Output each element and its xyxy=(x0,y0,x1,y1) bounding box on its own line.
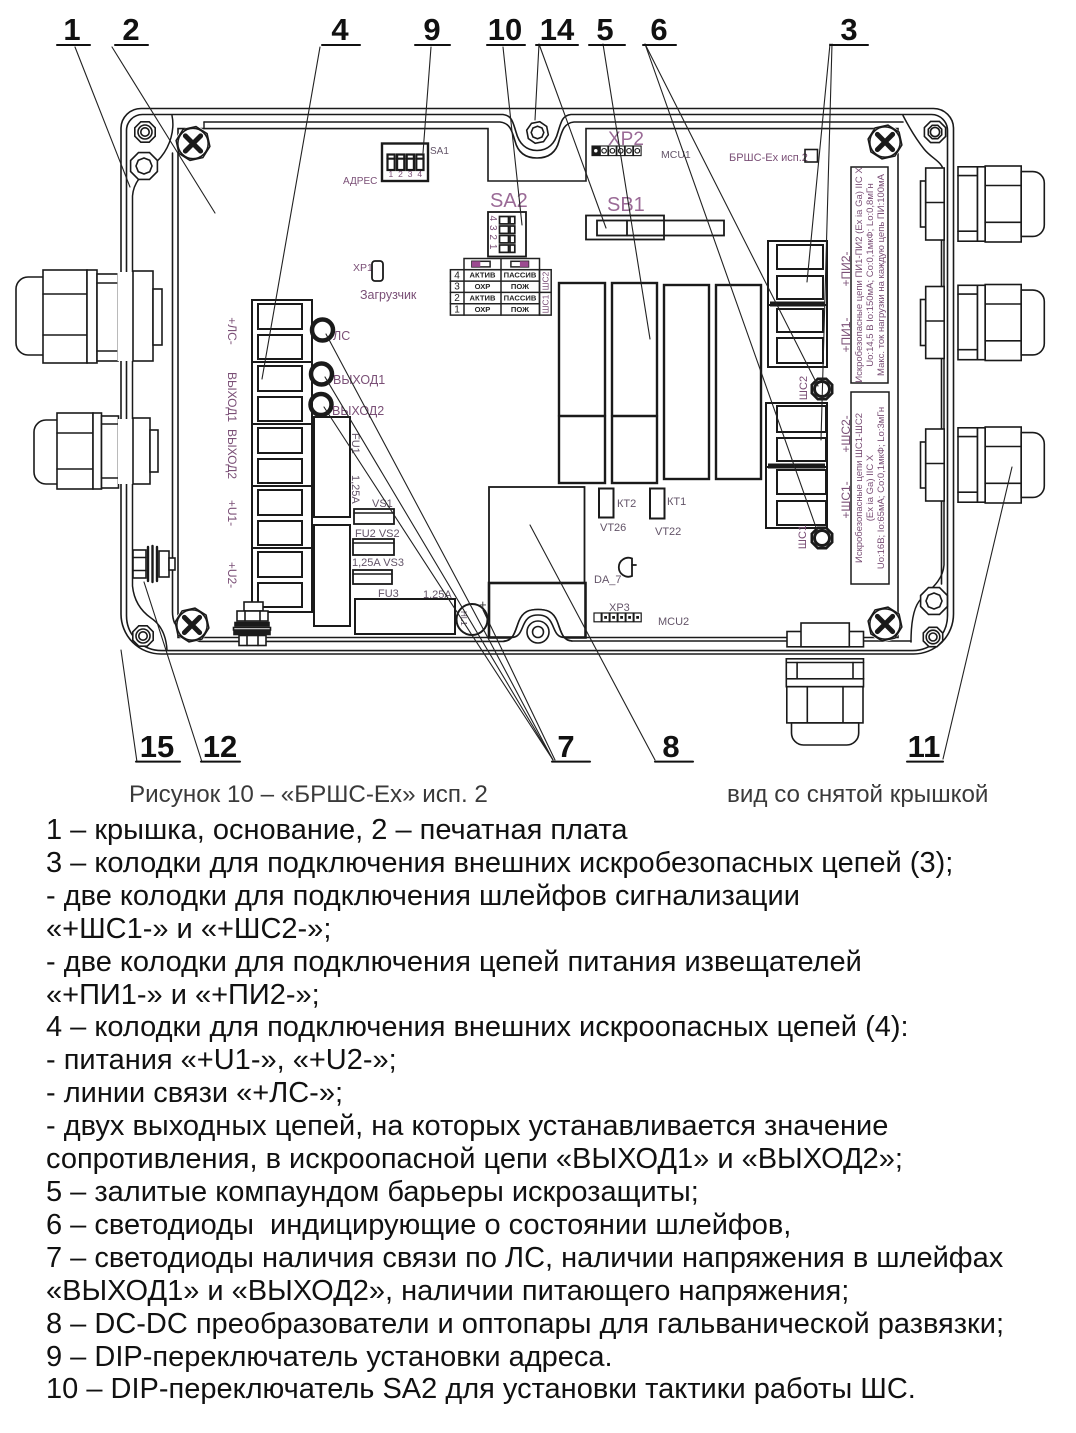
svg-text:MCU2: MCU2 xyxy=(658,616,689,628)
svg-text:3: 3 xyxy=(454,282,460,293)
svg-text:4321: 4321 xyxy=(487,216,498,254)
svg-text:DA_7: DA_7 xyxy=(594,574,622,586)
svg-text:ВЫХОД1: ВЫХОД1 xyxy=(333,373,385,387)
svg-text:2: 2 xyxy=(122,12,139,47)
svg-text:4: 4 xyxy=(331,12,349,47)
svg-text:3: 3 xyxy=(840,12,857,47)
svg-text:VT26: VT26 xyxy=(600,522,626,534)
svg-text:HL1: HL1 xyxy=(459,611,468,626)
svg-text:ПОЖ: ПОЖ xyxy=(511,282,529,291)
svg-text:ВЫХОД2: ВЫХОД2 xyxy=(332,404,384,418)
svg-text:4: 4 xyxy=(454,270,460,281)
svg-text:КТ2: КТ2 xyxy=(617,498,636,510)
svg-text:КТ1: КТ1 xyxy=(667,496,686,508)
svg-text:SA1: SA1 xyxy=(430,146,449,157)
svg-text:ПАССИВ: ПАССИВ xyxy=(504,293,537,302)
svg-text:ВЫХОД2: ВЫХОД2 xyxy=(225,429,239,479)
svg-text:14: 14 xyxy=(540,12,575,47)
svg-text:XP3: XP3 xyxy=(609,602,630,614)
svg-text:10: 10 xyxy=(488,12,522,47)
svg-text:(Ex ia Ga) IIC X: (Ex ia Ga) IIC X xyxy=(865,454,876,521)
svg-text:1,25A: 1,25A xyxy=(349,475,361,504)
svg-text:ВЫХОД1: ВЫХОД1 xyxy=(225,372,239,422)
svg-text:Uo:16В; Io:65мА; Co:0,1мкФ; Lo: Uo:16В; Io:65мА; Co:0,1мкФ; Lo:3мГн xyxy=(876,407,887,569)
svg-text:8: 8 xyxy=(662,729,679,764)
svg-text:БРШС-Ex исп.2: БРШС-Ex исп.2 xyxy=(729,152,808,164)
svg-text:Uo:14,5 B Io:150мА; Co:0,1мкФ: Uo:14,5 B Io:150мА; Co:0,1мкФ; Lo:0,8мГн xyxy=(865,183,876,366)
svg-text:6: 6 xyxy=(650,12,667,47)
svg-text:XP2: XP2 xyxy=(608,129,644,150)
svg-text:1: 1 xyxy=(63,12,80,47)
svg-text:Загрузчик: Загрузчик xyxy=(360,288,417,302)
svg-text:VT22: VT22 xyxy=(655,526,681,538)
svg-text:15: 15 xyxy=(140,729,174,764)
svg-text:ОХР: ОХР xyxy=(475,282,491,291)
svg-text:7: 7 xyxy=(557,729,574,764)
svg-text:SB1: SB1 xyxy=(607,194,645,216)
svg-text:Искробезопасные цепи ПИ1-ПИ2 (: Искробезопасные цепи ПИ1-ПИ2 (Ex ia Ga) … xyxy=(854,167,865,383)
svg-text:FU1: FU1 xyxy=(349,433,361,454)
svg-text:2: 2 xyxy=(454,293,460,304)
svg-text:ШС1: ШС1 xyxy=(541,294,551,313)
svg-text:XP1: XP1 xyxy=(353,262,373,274)
svg-text:MCU1: MCU1 xyxy=(661,149,691,161)
svg-text:ШС2: ШС2 xyxy=(541,271,551,290)
svg-text:12: 12 xyxy=(203,729,237,764)
svg-text:SA2: SA2 xyxy=(490,190,528,212)
svg-text:5: 5 xyxy=(596,12,613,47)
svg-text:ШС1: ШС1 xyxy=(797,525,809,549)
svg-text:АДРЕС: АДРЕС xyxy=(343,176,377,187)
svg-text:АКТИВ: АКТИВ xyxy=(470,271,496,280)
svg-text:Искробезопасные цепи ШС1-ШС2: Искробезопасные цепи ШС1-ШС2 xyxy=(854,413,865,563)
svg-text:9: 9 xyxy=(423,12,440,47)
svg-text:Макс. ток нагрузки на каждую ц: Макс. ток нагрузки на каждую цепь ПИ:100… xyxy=(876,173,887,376)
svg-text:ЛС: ЛС xyxy=(333,329,350,343)
svg-text:+ЛС-: +ЛС- xyxy=(225,317,239,345)
svg-text:ОХР: ОХР xyxy=(475,305,491,314)
svg-text:11: 11 xyxy=(908,729,941,764)
svg-text:ПАССИВ: ПАССИВ xyxy=(504,271,537,280)
svg-text:ПОЖ: ПОЖ xyxy=(511,305,529,314)
svg-text:ШС2: ШС2 xyxy=(798,376,810,400)
svg-text:1: 1 xyxy=(454,304,460,315)
svg-text:1234: 1234 xyxy=(389,169,428,179)
svg-text:+U2-: +U2- xyxy=(225,562,239,588)
svg-text:АКТИВ: АКТИВ xyxy=(470,293,496,302)
svg-text:+U1-: +U1- xyxy=(225,500,239,526)
svg-text:1,25A VS3: 1,25A VS3 xyxy=(352,557,404,569)
